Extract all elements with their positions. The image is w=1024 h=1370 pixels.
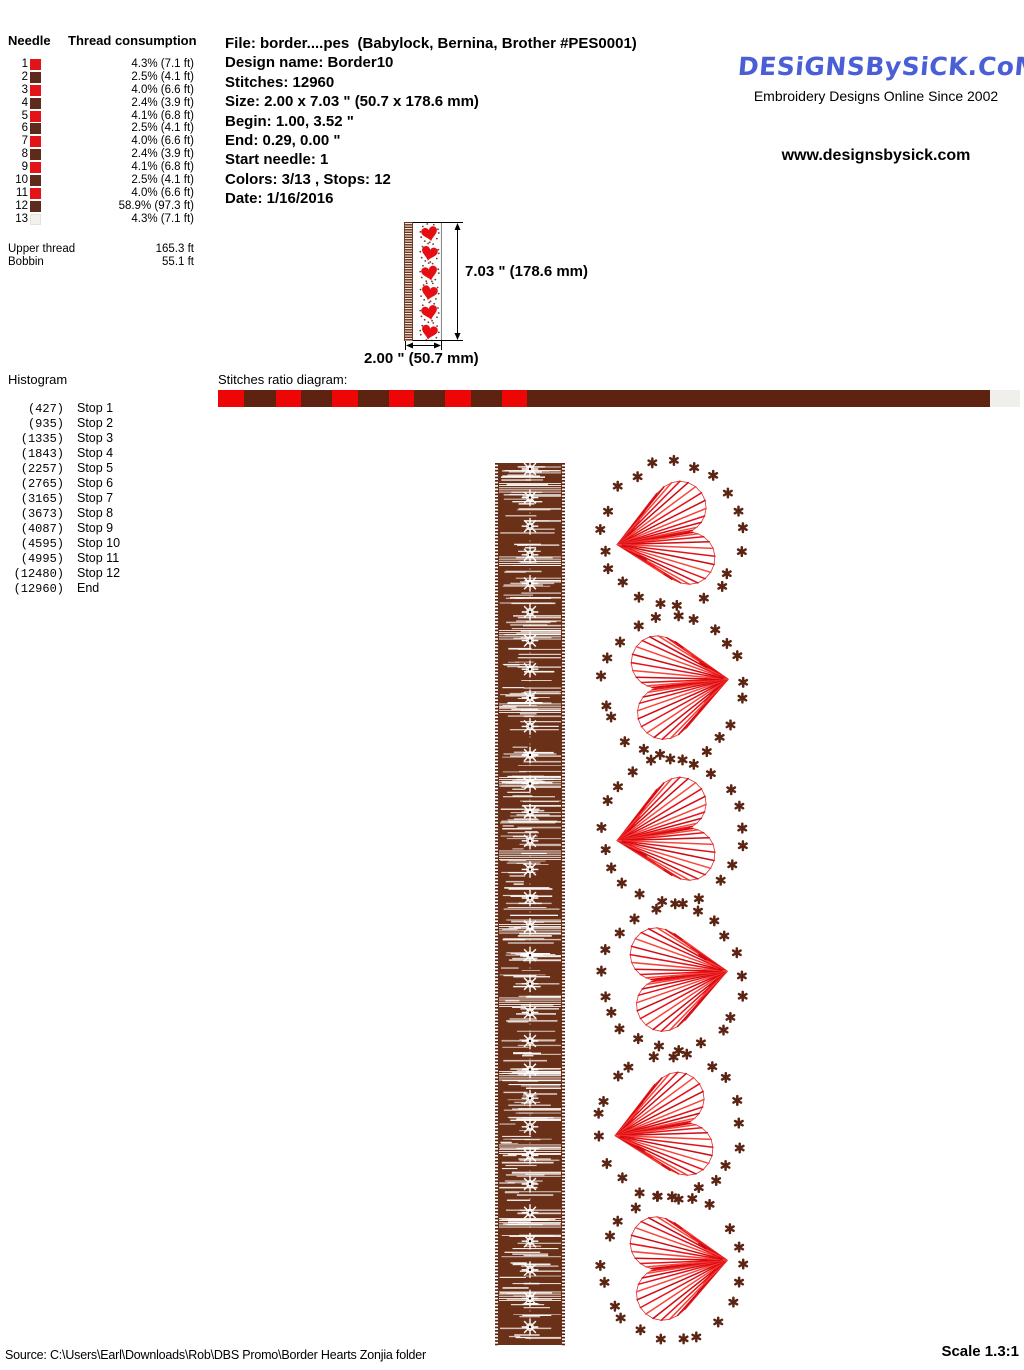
stitch-count: (1843) <box>6 447 64 462</box>
ring-dot <box>730 1298 738 1307</box>
ring-dot <box>734 1096 742 1105</box>
file-info-line: Date: 1/16/2016 <box>225 189 637 208</box>
snowflake-motif <box>522 518 539 535</box>
ring-dot <box>722 1073 729 1082</box>
file-info-line: End: 0.29, 0.00 " <box>225 131 637 150</box>
snowflake-motif <box>522 861 539 878</box>
ratio-segment <box>301 390 332 407</box>
stop-label: Stop 10 <box>77 536 120 551</box>
file-info-line: Colors: 3/13 , Stops: 12 <box>225 170 637 189</box>
ring-dot <box>603 1159 610 1168</box>
ring-dot <box>695 1183 702 1192</box>
stitch-count: (4087) <box>6 522 64 537</box>
ring-dot <box>697 1039 705 1048</box>
snowflake-motif <box>522 461 539 478</box>
stitch-count: (4595) <box>6 537 64 552</box>
file-info-line: File: border....pes (Babylock, Bernina, … <box>225 34 637 53</box>
snowflake-motif <box>522 489 539 506</box>
file-info-line: Begin: 1.00, 3.52 " <box>225 112 637 131</box>
file-info-line: Design name: Border10 <box>225 53 637 72</box>
thread-color-swatch <box>30 149 41 160</box>
ring-dot <box>690 615 697 624</box>
ring-dot <box>614 1217 621 1226</box>
stitch-count: (935) <box>6 417 64 432</box>
thread-color-swatch <box>30 175 41 186</box>
ring-dot <box>689 1194 696 1203</box>
stitch-count: (12960) <box>6 582 64 597</box>
ring-dot <box>649 459 656 468</box>
ring-dot <box>715 1318 723 1327</box>
ring-dot <box>625 1063 632 1072</box>
ratio-segment <box>332 390 358 407</box>
ring-dot <box>615 1072 622 1081</box>
snowflake-motif <box>522 1004 539 1021</box>
thread-consumption-value: 58.9% (97.3 ft) <box>41 200 194 213</box>
ring-dot <box>636 1189 643 1198</box>
ring-dot <box>647 756 654 765</box>
needle-table-header: Needle Thread consumption <box>8 33 197 48</box>
ring-dot <box>722 1161 730 1170</box>
snowflake-motif <box>522 575 539 592</box>
ring-dot <box>616 929 624 938</box>
histogram-rows: (427)Stop 1(935)Stop 2(1335)Stop 3(1843)… <box>6 401 120 596</box>
designsbysick-logo: DESiGNSBySiCK.CoM <box>737 52 1016 81</box>
needle-row: 22.5% (4.1 ft) <box>8 71 194 84</box>
needle-row: 82.4% (3.9 ft) <box>8 148 194 161</box>
ring-dot <box>616 638 623 647</box>
ratio-diagram-title: Stitches ratio diagram: <box>218 372 347 387</box>
histogram-row: (2257)Stop 5 <box>6 461 120 476</box>
ring-dot <box>597 1261 605 1270</box>
heart-motif <box>598 900 747 1055</box>
ring-dot <box>658 897 665 906</box>
needle-row: 14.3% (7.1 ft) <box>8 58 194 71</box>
snowflake-motif <box>522 718 539 735</box>
needle-row: 94.1% (6.8 ft) <box>8 161 194 174</box>
thread-consumption-value: 2.5% (4.1 ft) <box>41 122 194 135</box>
stop-label: Stop 8 <box>77 506 113 521</box>
ring-dot <box>735 1243 743 1252</box>
ring-dot <box>602 547 610 556</box>
ring-dot <box>600 1097 608 1106</box>
stop-label: Stop 2 <box>77 416 113 431</box>
needle-number: 7 <box>8 135 28 148</box>
thread-consumption-value: 4.1% (6.8 ft) <box>41 110 194 123</box>
ring-dot <box>598 823 605 832</box>
needle-number: 9 <box>8 161 28 174</box>
ratio-segment <box>527 390 990 407</box>
stop-label: Stop 9 <box>77 521 113 536</box>
ring-dot <box>670 1053 677 1062</box>
ring-dot <box>672 900 679 909</box>
histogram-row: (3165)Stop 7 <box>6 491 120 506</box>
thread-color-swatch <box>30 214 41 225</box>
ring-dot <box>723 639 730 648</box>
file-info-block: File: border....pes (Babylock, Bernina, … <box>225 34 637 209</box>
thread-color-swatch <box>30 59 41 70</box>
needle-number: 8 <box>8 148 28 161</box>
stitch-count: (2257) <box>6 462 64 477</box>
histogram-row: (4087)Stop 9 <box>6 521 120 536</box>
thread-consumption-value: 4.0% (6.6 ft) <box>41 84 194 97</box>
needle-number: 2 <box>8 71 28 84</box>
ring-dot <box>703 747 710 756</box>
border-strip-preview <box>495 461 565 1346</box>
ratio-segment <box>244 390 275 407</box>
ring-dot <box>652 613 660 622</box>
ratio-segment <box>358 390 389 407</box>
ring-dot <box>721 932 729 941</box>
thread-color-swatch <box>30 72 41 83</box>
ring-dot <box>629 768 636 777</box>
ring-dot <box>733 948 741 957</box>
histogram-row: (2765)Stop 6 <box>6 476 120 491</box>
upper-thread-row: Upper thread 165.3 ft <box>8 243 194 256</box>
ring-dot <box>736 1144 743 1153</box>
stitch-count: (3673) <box>6 507 64 522</box>
ring-dot <box>740 678 747 687</box>
stop-label: Stop 7 <box>77 491 113 506</box>
needle-number: 4 <box>8 97 28 110</box>
ring-dot <box>614 482 621 491</box>
ring-dot <box>723 569 730 578</box>
ring-dot <box>598 967 606 976</box>
design-thumbnail <box>404 222 441 342</box>
snowflake-motif <box>522 890 539 907</box>
stitch-count: (3165) <box>6 492 64 507</box>
needle-number: 13 <box>8 213 28 226</box>
ratio-segment <box>414 390 445 407</box>
snowflake-motif <box>522 1262 539 1279</box>
ring-dot <box>695 894 702 903</box>
needle-row: 34.0% (6.6 ft) <box>8 84 194 97</box>
ring-dot <box>611 1302 619 1311</box>
snowflake-motif <box>522 775 539 792</box>
thread-consumption-value: 2.5% (4.1 ft) <box>41 174 194 187</box>
ring-dot <box>634 1034 642 1043</box>
ring-dot <box>675 1046 682 1055</box>
stop-label: Stop 12 <box>77 566 120 581</box>
ring-dot <box>727 721 734 730</box>
ring-dot <box>617 1314 625 1323</box>
histogram-row: (4995)Stop 11 <box>6 551 120 566</box>
needle-row: 1258.9% (97.3 ft) <box>8 200 194 213</box>
thread-color-swatch <box>30 201 41 212</box>
ring-dot <box>606 1232 613 1241</box>
snowflake-motif <box>522 1319 539 1336</box>
ring-dot <box>608 864 616 873</box>
ring-dot <box>667 755 674 764</box>
file-info-line: Start needle: 1 <box>225 150 637 169</box>
ring-dot <box>690 760 697 769</box>
ring-dot <box>607 713 615 722</box>
needle-number: 6 <box>8 122 28 135</box>
ring-dot <box>597 672 605 681</box>
thread-color-swatch <box>30 98 41 109</box>
ring-dot <box>657 1335 664 1344</box>
ring-dot <box>635 622 643 631</box>
thread-consumption-value: 4.0% (6.6 ft) <box>41 187 194 200</box>
needle-number: 11 <box>8 187 28 200</box>
snowflake-motif <box>522 1290 539 1307</box>
needle-row: 114.0% (6.6 ft) <box>8 187 194 200</box>
snowflake-motif <box>522 747 539 764</box>
ring-dot <box>655 1042 663 1051</box>
ring-dot <box>621 737 628 746</box>
ring-dot <box>738 972 745 981</box>
ring-dot <box>726 1224 733 1233</box>
snowflake-motif <box>522 1061 539 1078</box>
ring-dot <box>604 507 612 516</box>
thread-consumption-value: 4.0% (6.6 ft) <box>41 135 194 148</box>
ring-dot <box>602 945 610 954</box>
needle-number: 10 <box>8 174 28 187</box>
ring-dot <box>673 601 680 610</box>
ring-dot <box>736 802 743 811</box>
thread-consumption-value: 2.5% (4.1 ft) <box>41 71 194 84</box>
needle-row: 134.3% (7.1 ft) <box>8 213 194 226</box>
ring-dot <box>739 824 747 833</box>
stop-label: End <box>77 581 99 596</box>
histogram-row: (935)Stop 2 <box>6 416 120 431</box>
needle-row: 54.1% (6.8 ft) <box>8 110 194 123</box>
stop-label: Stop 1 <box>77 401 113 416</box>
ratio-segment <box>276 390 301 407</box>
ring-dot <box>711 917 718 926</box>
ring-dot <box>631 915 639 924</box>
ring-dot <box>601 1278 608 1287</box>
histogram-row: (12960)End <box>6 581 120 596</box>
histogram-row: (4595)Stop 10 <box>6 536 120 551</box>
snowflake-motif <box>522 1033 539 1050</box>
ring-dot <box>683 1050 691 1059</box>
ring-dot <box>670 456 677 465</box>
ring-dot <box>690 463 698 472</box>
ring-dot <box>679 756 687 765</box>
ring-dot <box>738 547 746 556</box>
histogram-row: (1843)Stop 4 <box>6 446 120 461</box>
needle-number: 12 <box>8 200 28 213</box>
needle-row: 62.5% (4.1 ft) <box>8 122 194 135</box>
ring-dot <box>739 992 746 1001</box>
width-dimension-label: 2.00 " (50.7 mm) <box>364 350 479 367</box>
ring-dot <box>727 1013 734 1022</box>
snowflake-motif <box>522 604 539 621</box>
stop-label: Stop 5 <box>77 461 113 476</box>
ring-dot <box>657 599 664 608</box>
stitches-ratio-bar <box>218 390 1020 407</box>
snowflake-motif <box>522 833 539 850</box>
ring-dot <box>707 769 714 778</box>
ring-dot <box>597 525 604 534</box>
ring-dot <box>675 612 683 621</box>
thread-color-swatch <box>30 188 41 199</box>
ring-dot <box>713 1176 720 1185</box>
thread-consumption-value: 2.4% (3.9 ft) <box>41 97 194 110</box>
ring-dot <box>635 593 643 602</box>
ring-dot <box>604 796 611 805</box>
ring-dot <box>614 782 622 791</box>
snowflake-motif <box>522 1119 539 1136</box>
ring-dot <box>716 733 724 742</box>
ring-dot <box>735 507 742 516</box>
heart-motif <box>598 755 747 908</box>
ring-dot <box>619 1174 626 1183</box>
ring-dot <box>729 861 737 870</box>
snowflake-motif <box>522 918 539 935</box>
ring-dot <box>636 890 643 899</box>
ring-dot <box>602 845 609 854</box>
needle-row: 102.5% (4.1 ft) <box>8 174 194 187</box>
file-info-line: Stitches: 12960 <box>225 73 637 92</box>
ring-dot <box>680 1335 687 1344</box>
needle-row: 74.0% (6.6 ft) <box>8 135 194 148</box>
website-url: www.designsbysick.com <box>738 147 1014 165</box>
histogram-row: (3673)Stop 8 <box>6 506 120 521</box>
ring-dot <box>634 472 641 481</box>
bobbin-row: Bobbin 55.1 ft <box>8 256 194 269</box>
ring-dot <box>709 1062 716 1071</box>
stitch-count: (12480) <box>6 567 64 582</box>
ratio-segment <box>389 390 414 407</box>
needle-number: 1 <box>8 58 28 71</box>
ring-dot <box>739 523 746 532</box>
thread-consumption-value: 4.1% (6.8 ft) <box>41 161 194 174</box>
histogram-row: (1335)Stop 3 <box>6 431 120 446</box>
stop-label: Stop 11 <box>77 551 119 566</box>
snowflake-motif <box>522 547 539 564</box>
ring-dot <box>706 1200 713 1209</box>
upper-thread-value: 165.3 ft <box>156 243 194 256</box>
thread-color-swatch <box>30 111 41 122</box>
source-path: Source: C:\Users\Earl\Downloads\Rob\DBS … <box>5 1348 426 1362</box>
ring-dot <box>717 876 724 885</box>
snowflake-motif <box>522 1176 539 1193</box>
ratio-segment <box>471 390 502 407</box>
ratio-segment <box>218 390 244 407</box>
thread-consumption-header: Thread consumption <box>68 33 197 48</box>
logo-tagline: Embroidery Designs Online Since 2002 <box>738 88 1014 104</box>
ring-dot <box>616 1025 623 1034</box>
ring-dot <box>602 993 610 1002</box>
stitch-count: (1335) <box>6 432 64 447</box>
histogram-row: (12480)Stop 12 <box>6 566 120 581</box>
thread-color-swatch <box>30 123 41 134</box>
ring-dot <box>618 879 625 888</box>
heart-motif <box>595 1050 744 1204</box>
ring-dot <box>709 471 717 480</box>
snowflake-motif <box>522 1090 539 1107</box>
ring-dot <box>632 1204 639 1213</box>
needle-row: 42.4% (3.9 ft) <box>8 97 194 110</box>
file-info-line: Size: 2.00 x 7.03 " (50.7 x 178.6 mm) <box>225 92 637 111</box>
ring-dot <box>724 489 732 498</box>
ring-dot <box>619 578 627 587</box>
ring-dot <box>700 594 708 603</box>
ring-dot <box>653 905 660 914</box>
stitch-count: (4995) <box>6 552 64 567</box>
ring-dot <box>693 1333 700 1342</box>
ring-dot <box>694 907 701 916</box>
ring-dot <box>679 899 686 908</box>
needle-number: 5 <box>8 110 28 123</box>
ring-dot <box>740 1260 747 1269</box>
snowflake-motif <box>522 690 539 707</box>
ring-dot <box>712 626 720 635</box>
histogram-title: Histogram <box>8 372 67 387</box>
ring-dot <box>720 1026 728 1035</box>
ring-dot <box>739 841 747 850</box>
snowflake-motif <box>522 1204 539 1221</box>
heart-motif <box>597 456 747 610</box>
ring-dot <box>735 1119 743 1128</box>
upper-thread-label: Upper thread <box>8 243 156 256</box>
stitch-count: (2765) <box>6 477 64 492</box>
ring-dot <box>734 651 742 660</box>
thread-color-swatch <box>30 136 41 147</box>
thread-color-swatch <box>30 85 41 96</box>
ring-dot <box>603 702 610 711</box>
ring-dot <box>656 750 664 759</box>
ring-dot <box>739 694 746 703</box>
ring-dot <box>719 582 726 591</box>
snowflake-motif <box>522 976 539 993</box>
thread-totals: Upper thread 165.3 ft Bobbin 55.1 ft <box>8 243 194 269</box>
stitch-count: (427) <box>6 402 64 417</box>
snowflake-motif <box>522 1147 539 1164</box>
snowflake-motif <box>522 804 539 821</box>
ratio-segment <box>502 390 527 407</box>
needle-table-rows: 14.3% (7.1 ft)22.5% (4.1 ft)34.0% (6.6 f… <box>8 58 194 226</box>
ring-dot <box>604 654 612 663</box>
thread-color-swatch <box>30 162 41 173</box>
ring-dot <box>637 1326 644 1335</box>
snowflake-motif <box>522 1233 539 1250</box>
stop-label: Stop 6 <box>77 476 113 491</box>
ring-dot <box>735 1278 743 1287</box>
scale-label: Scale 1.3:1 <box>941 1343 1019 1360</box>
snowflake-motif <box>522 947 539 964</box>
needle-number: 3 <box>8 84 28 97</box>
ring-dot <box>595 1132 602 1141</box>
thread-consumption-value: 4.3% (7.1 ft) <box>41 213 194 226</box>
ring-dot <box>728 785 735 794</box>
snowflake-motif <box>522 661 539 678</box>
needle-column-header: Needle <box>8 33 60 48</box>
ratio-segment <box>445 390 471 407</box>
snowflake-motif <box>522 632 539 649</box>
ring-dot <box>640 745 648 754</box>
ratio-segment <box>990 390 1020 407</box>
stop-label: Stop 3 <box>77 431 113 446</box>
thread-consumption-value: 2.4% (3.9 ft) <box>41 148 194 161</box>
height-dimension-label: 7.03 " (178.6 mm) <box>465 263 588 280</box>
heart-motif <box>597 612 747 765</box>
heart-motif <box>597 1192 747 1343</box>
thread-consumption-value: 4.3% (7.1 ft) <box>41 58 194 71</box>
ring-dot <box>608 1008 616 1017</box>
histogram-row: (427)Stop 1 <box>6 401 120 416</box>
ring-dot <box>595 1109 602 1118</box>
bobbin-label: Bobbin <box>8 256 162 269</box>
ring-dot <box>650 1053 658 1062</box>
stop-label: Stop 4 <box>77 446 113 461</box>
bobbin-value: 55.1 ft <box>162 256 194 269</box>
ring-dot <box>604 564 612 573</box>
